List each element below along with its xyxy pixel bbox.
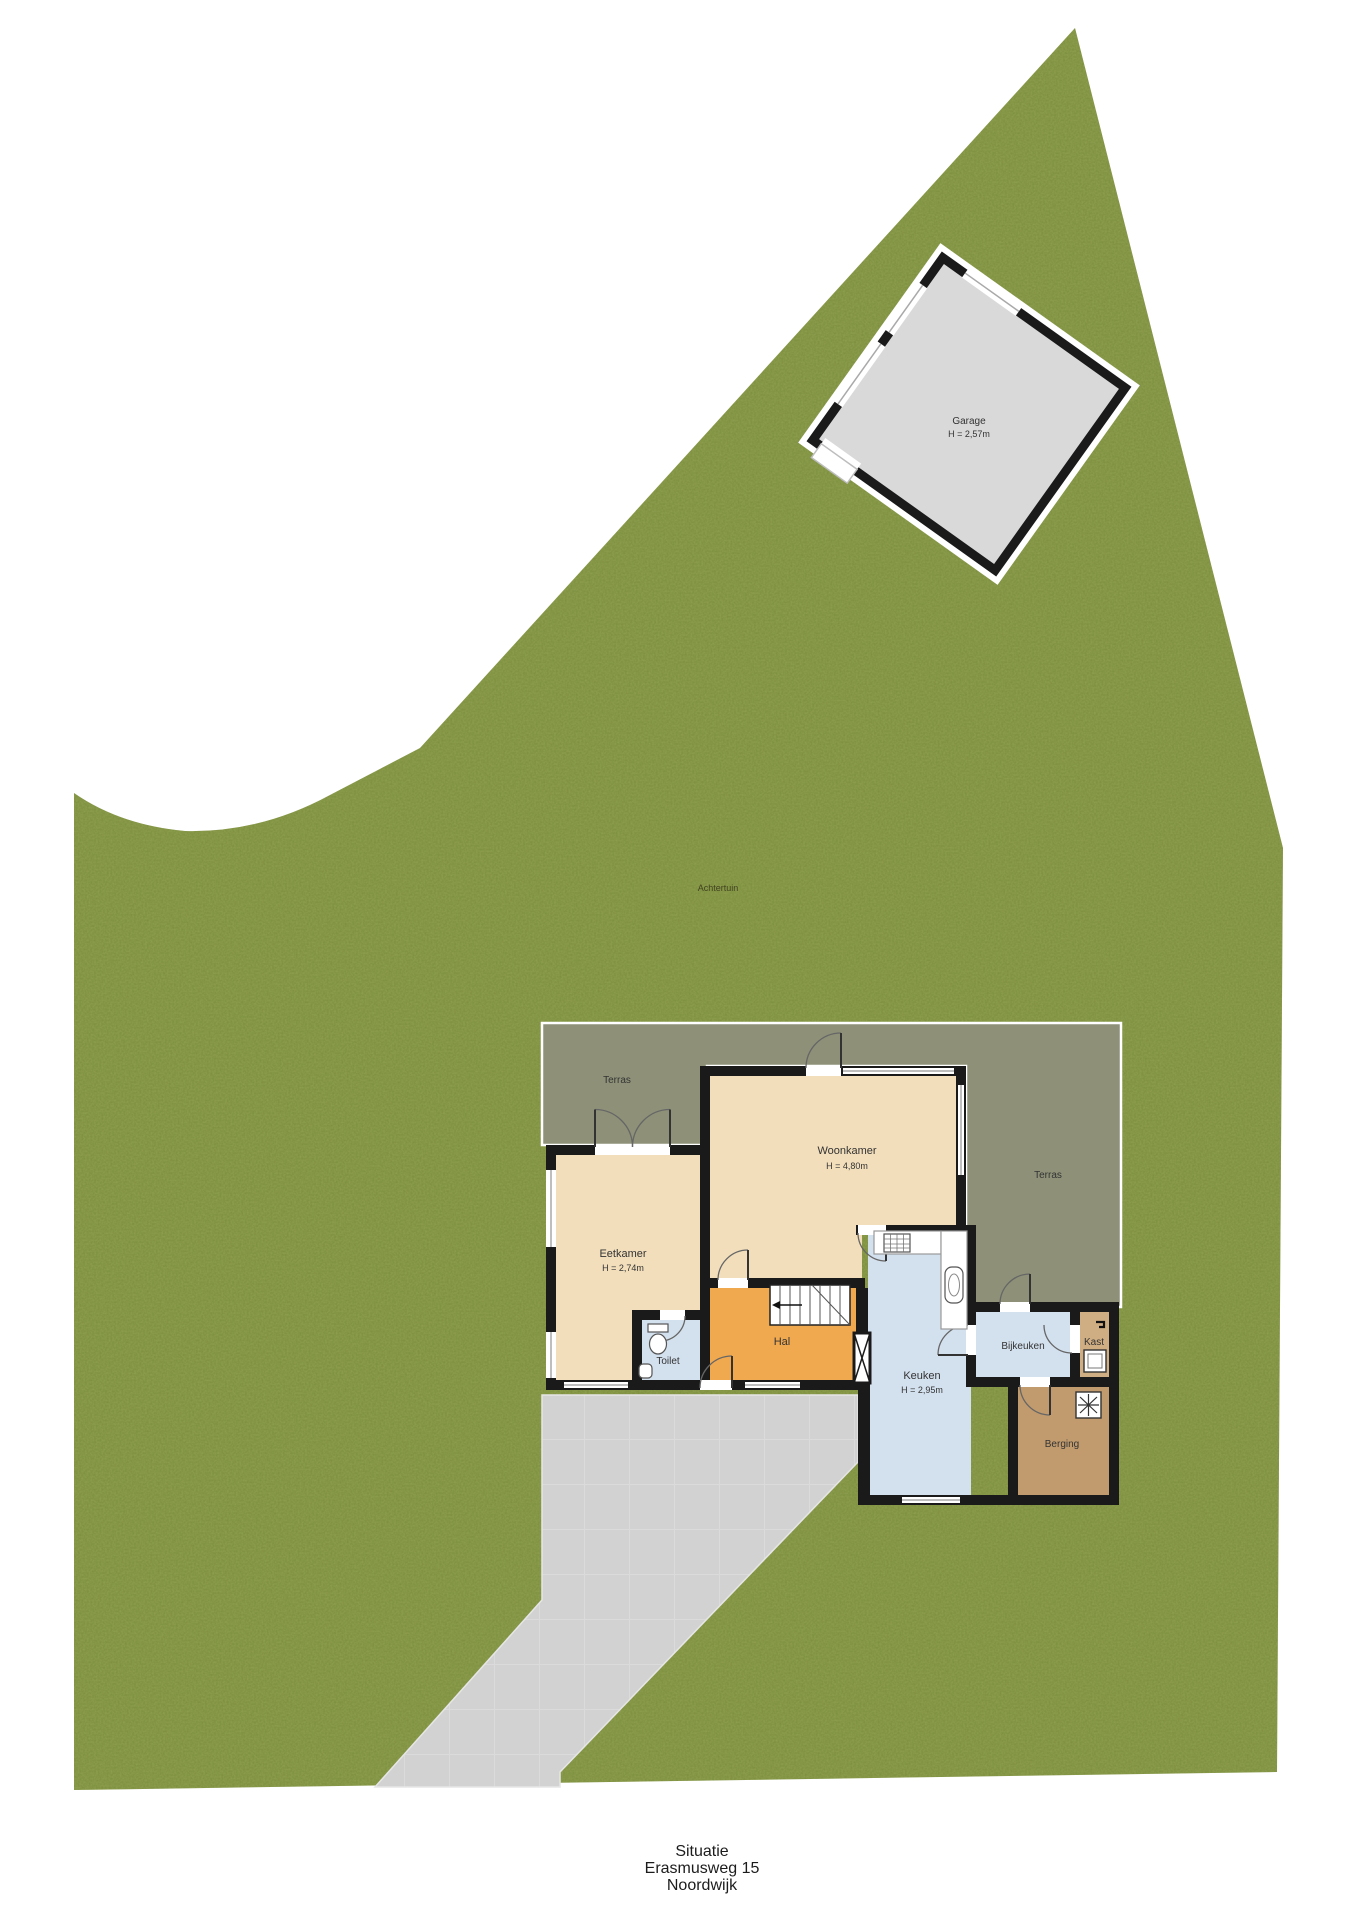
boiler-icon xyxy=(1076,1392,1101,1418)
label-terras-right: Terras xyxy=(1034,1170,1062,1181)
staircase-icon xyxy=(770,1285,850,1325)
label-eetkamer: Eetkamer xyxy=(599,1248,646,1260)
site-plan-canvas: Achtertuin Garage H = 2,57m Terras Terra… xyxy=(0,0,1358,1920)
label-bijkeuken: Bijkeuken xyxy=(1001,1341,1044,1352)
label-keuken: Keuken xyxy=(903,1370,940,1382)
label-eetkamer-height: H = 2,74m xyxy=(602,1263,644,1273)
label-woonkamer-height: H = 4,80m xyxy=(826,1161,868,1171)
x-window-icon xyxy=(854,1333,870,1383)
label-woonkamer: Woonkamer xyxy=(817,1145,876,1157)
label-garage: Garage xyxy=(952,416,986,427)
sink-icon xyxy=(945,1267,963,1303)
caption: Situatie Erasmusweg 15 Noordwijk xyxy=(645,1843,760,1894)
hob-icon xyxy=(884,1234,910,1252)
caption-title: Situatie xyxy=(645,1843,760,1860)
label-achtertuin: Achtertuin xyxy=(698,883,739,893)
label-hal: Hal xyxy=(774,1336,791,1348)
label-keuken-height: H = 2,95m xyxy=(901,1385,943,1395)
caption-address: Erasmusweg 15 xyxy=(645,1860,760,1877)
label-berging: Berging xyxy=(1045,1439,1079,1450)
label-kast: Kast xyxy=(1084,1337,1104,1348)
label-toilet: Toilet xyxy=(656,1356,680,1367)
caption-city: Noordwijk xyxy=(645,1877,760,1894)
label-terras-left: Terras xyxy=(603,1075,631,1086)
site-plan-page: Achtertuin Garage H = 2,57m Terras Terra… xyxy=(0,0,1358,1920)
label-garage-height: H = 2,57m xyxy=(948,429,990,439)
